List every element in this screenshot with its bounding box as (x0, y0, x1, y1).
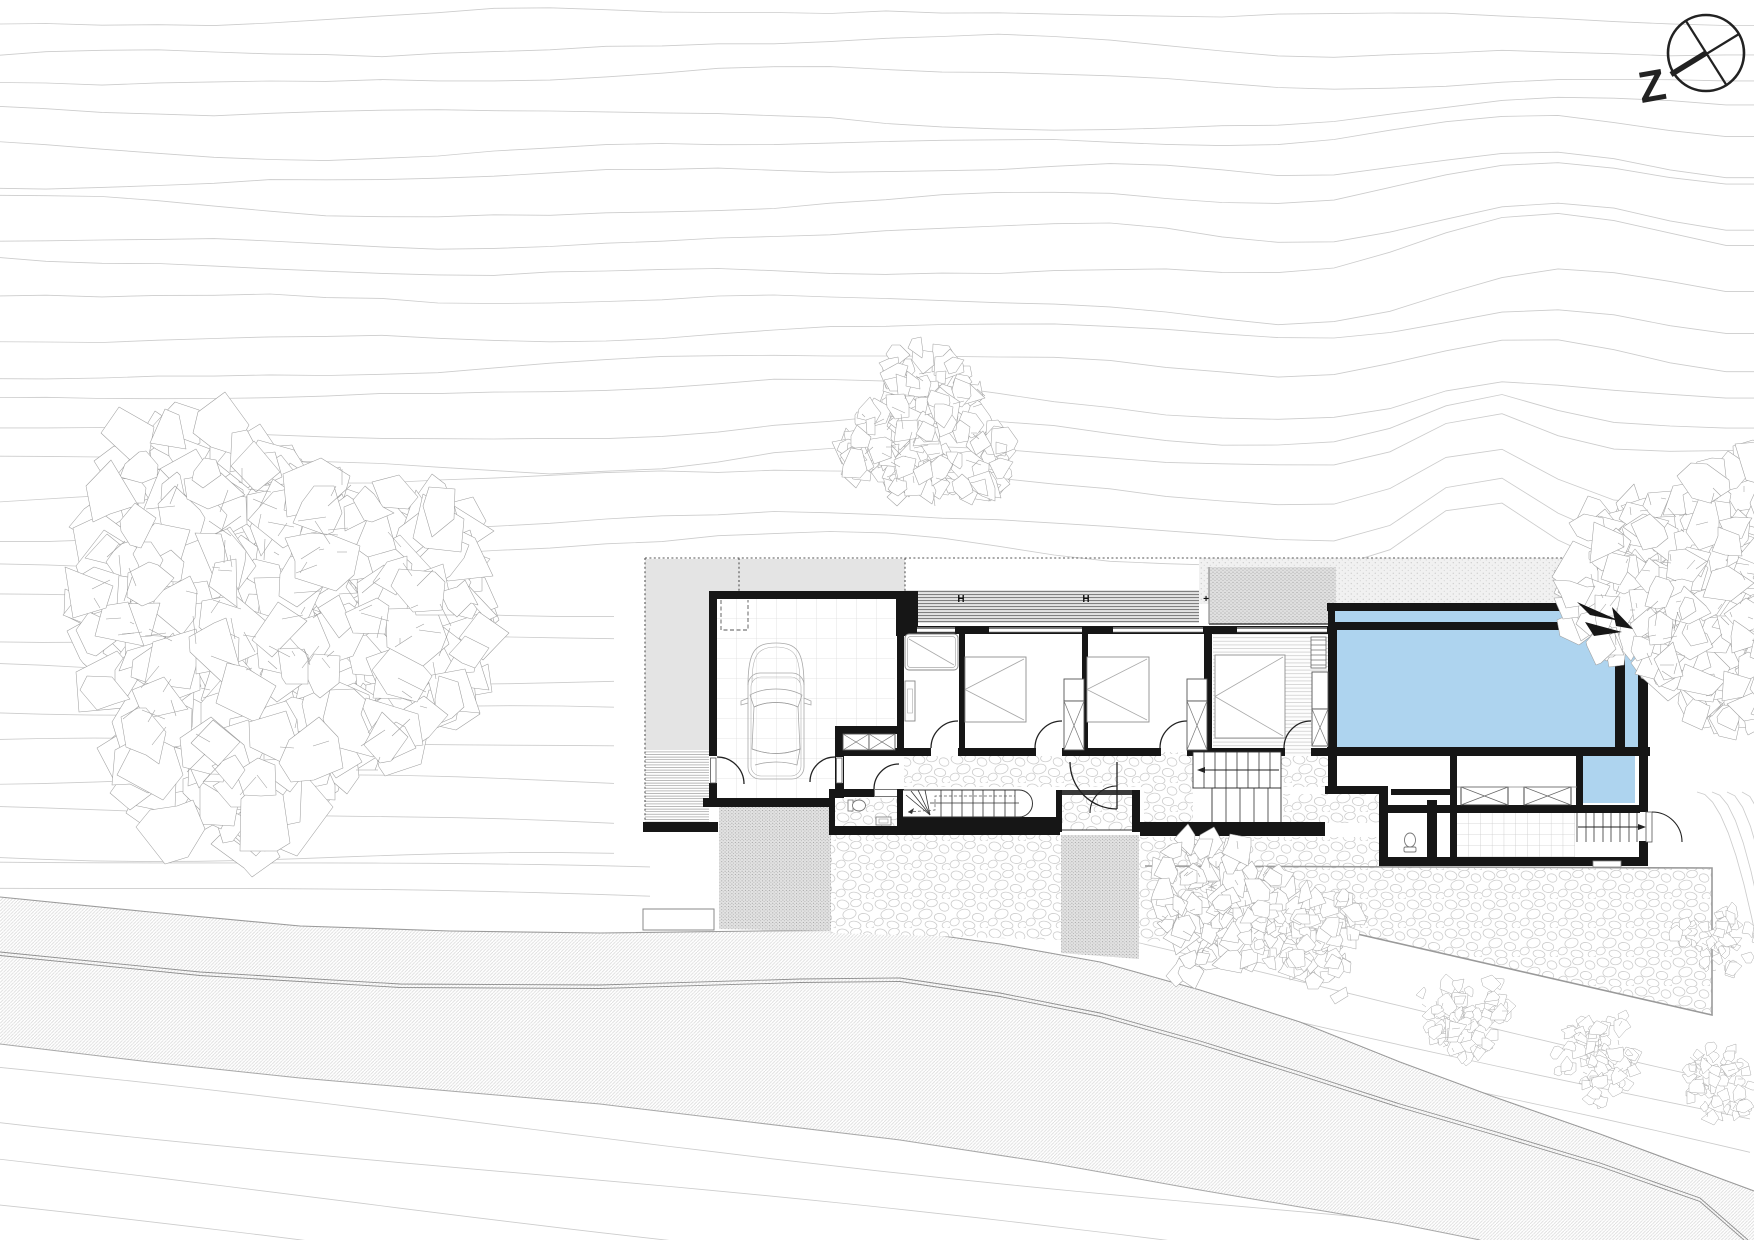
svg-text:+: + (1203, 594, 1209, 605)
svg-text:H: H (957, 594, 964, 605)
svg-text:H: H (1082, 594, 1089, 605)
